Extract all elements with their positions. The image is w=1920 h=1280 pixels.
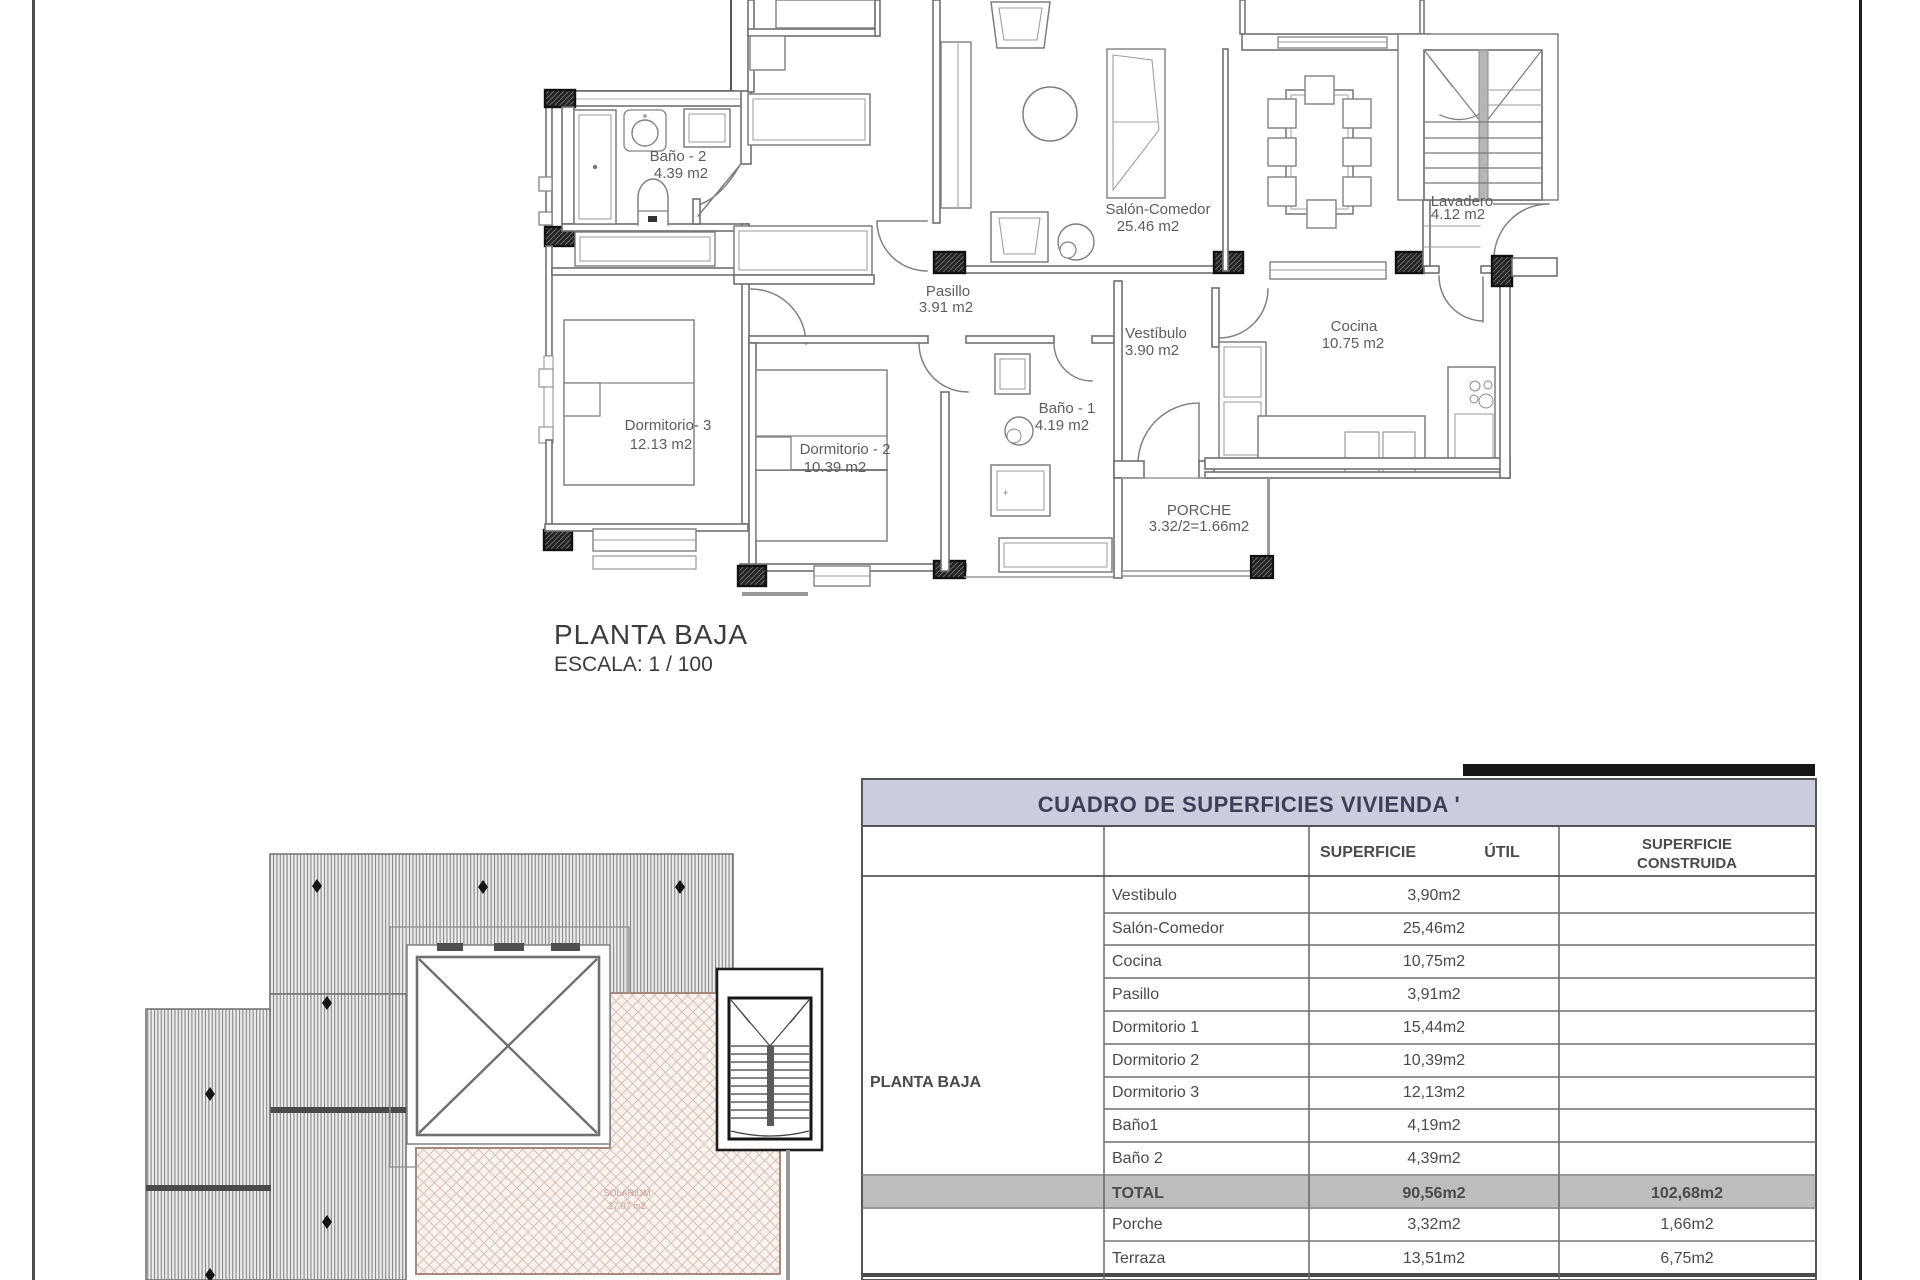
svg-text:SUPERFICIE: SUPERFICIE <box>1642 836 1732 853</box>
svg-text:10.75 m2: 10.75 m2 <box>1322 335 1385 352</box>
svg-text:25.46 m2: 25.46 m2 <box>1117 218 1180 235</box>
svg-text:Cocina: Cocina <box>1112 953 1162 970</box>
svg-text:27.07 m2: 27.07 m2 <box>608 1201 646 1211</box>
svg-text:Cocina: Cocina <box>1331 318 1378 335</box>
svg-text:4.19 m2: 4.19 m2 <box>1035 417 1089 434</box>
svg-text:Baño 2: Baño 2 <box>1112 1150 1163 1167</box>
svg-text:ESCALA: 1 / 100: ESCALA: 1 / 100 <box>554 653 713 676</box>
svg-text:Dormitorio 2: Dormitorio 2 <box>1112 1052 1199 1069</box>
svg-text:ÚTIL: ÚTIL <box>1484 842 1520 861</box>
svg-text:SOLARIUM: SOLARIUM <box>603 1188 650 1198</box>
svg-text:Dormitorio 1: Dormitorio 1 <box>1112 1019 1199 1036</box>
svg-text:Vestíbulo: Vestíbulo <box>1125 325 1187 342</box>
svg-text:Porche: Porche <box>1112 1216 1163 1233</box>
svg-text:CONSTRUIDA: CONSTRUIDA <box>1637 855 1737 872</box>
svg-text:6,75m2: 6,75m2 <box>1660 1250 1713 1267</box>
svg-text:25,46m2: 25,46m2 <box>1403 920 1465 937</box>
svg-text:3,90m2: 3,90m2 <box>1407 887 1460 904</box>
svg-text:3.90 m2: 3.90 m2 <box>1125 342 1179 359</box>
svg-text:Pasillo: Pasillo <box>926 283 970 300</box>
svg-text:TOTAL: TOTAL <box>1112 1185 1164 1202</box>
svg-text:102,68m2: 102,68m2 <box>1651 1185 1723 1202</box>
svg-text:4,39m2: 4,39m2 <box>1407 1150 1460 1167</box>
svg-text:3,91m2: 3,91m2 <box>1407 986 1460 1003</box>
svg-text:Baño - 1: Baño - 1 <box>1039 400 1096 417</box>
svg-text:4.39 m2: 4.39 m2 <box>654 165 708 182</box>
svg-text:12,13m2: 12,13m2 <box>1403 1084 1465 1101</box>
svg-text:Baño - 2: Baño - 2 <box>650 148 707 165</box>
svg-text:1,66m2: 1,66m2 <box>1660 1216 1713 1233</box>
svg-text:Terraza: Terraza <box>1112 1250 1165 1267</box>
svg-text:10,39m2: 10,39m2 <box>1403 1052 1465 1069</box>
svg-text:90,56m2: 90,56m2 <box>1402 1185 1465 1202</box>
svg-text:Pasillo: Pasillo <box>1112 986 1159 1003</box>
svg-text:+: + <box>1003 488 1008 498</box>
svg-text:SUPERFICIE: SUPERFICIE <box>1320 844 1416 861</box>
svg-text:Salón-Comedor: Salón-Comedor <box>1112 920 1225 937</box>
svg-text:Baño1: Baño1 <box>1112 1117 1158 1134</box>
svg-text:10.39 m2: 10.39 m2 <box>804 459 867 476</box>
svg-text:CUADRO DE SUPERFICIES VIVIEND: CUADRO DE SUPERFICIES VIVIENDA ' <box>1038 792 1461 817</box>
svg-text:PORCHE: PORCHE <box>1167 502 1231 519</box>
svg-text:12.13 m2: 12.13 m2 <box>630 436 693 453</box>
svg-text:PLANTA BAJA: PLANTA BAJA <box>554 619 748 650</box>
svg-text:Salón-Comedor: Salón-Comedor <box>1105 201 1210 218</box>
svg-text:3.91 m2: 3.91 m2 <box>919 299 973 316</box>
svg-text:Dormitorio 3: Dormitorio 3 <box>1112 1084 1199 1101</box>
svg-text:3.32/2=1.66m2: 3.32/2=1.66m2 <box>1149 518 1250 535</box>
svg-text:Dormitorio - 2: Dormitorio - 2 <box>800 441 891 458</box>
svg-text:10,75m2: 10,75m2 <box>1403 953 1465 970</box>
svg-text:15,44m2: 15,44m2 <box>1403 1019 1465 1036</box>
svg-text:4.12 m2: 4.12 m2 <box>1431 206 1485 223</box>
svg-text:Dormitorio- 3: Dormitorio- 3 <box>625 417 712 434</box>
svg-text:4,19m2: 4,19m2 <box>1407 1117 1460 1134</box>
svg-text:Vestibulo: Vestibulo <box>1112 887 1177 904</box>
svg-text:13,51m2: 13,51m2 <box>1403 1250 1465 1267</box>
svg-text:PLANTA BAJA: PLANTA BAJA <box>870 1074 982 1091</box>
svg-text:3,32m2: 3,32m2 <box>1407 1216 1460 1233</box>
